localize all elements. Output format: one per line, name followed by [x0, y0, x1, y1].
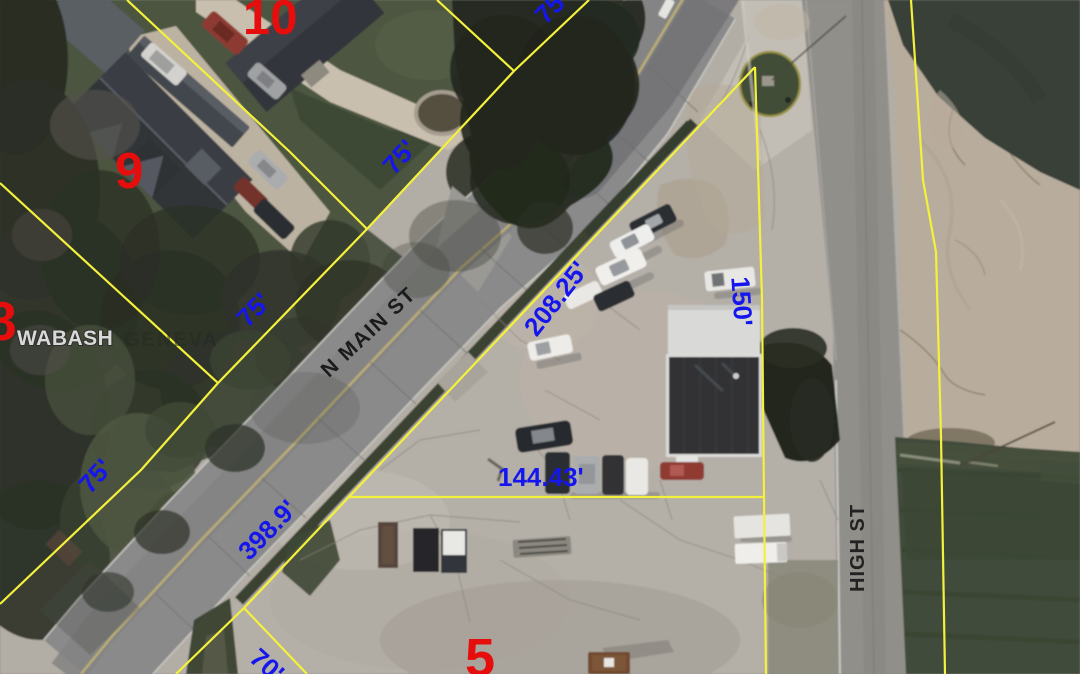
svg-text:GENEVA: GENEVA [124, 329, 219, 351]
svg-text:HIGH ST: HIGH ST [847, 504, 869, 592]
svg-text:8: 8 [0, 290, 17, 352]
svg-text:9: 9 [115, 142, 143, 199]
svg-text:144.43': 144.43' [498, 462, 584, 492]
svg-text:WABASH: WABASH [17, 327, 113, 350]
svg-text:150': 150' [725, 276, 758, 328]
svg-text:5: 5 [465, 628, 495, 674]
svg-text:10: 10 [243, 0, 298, 45]
